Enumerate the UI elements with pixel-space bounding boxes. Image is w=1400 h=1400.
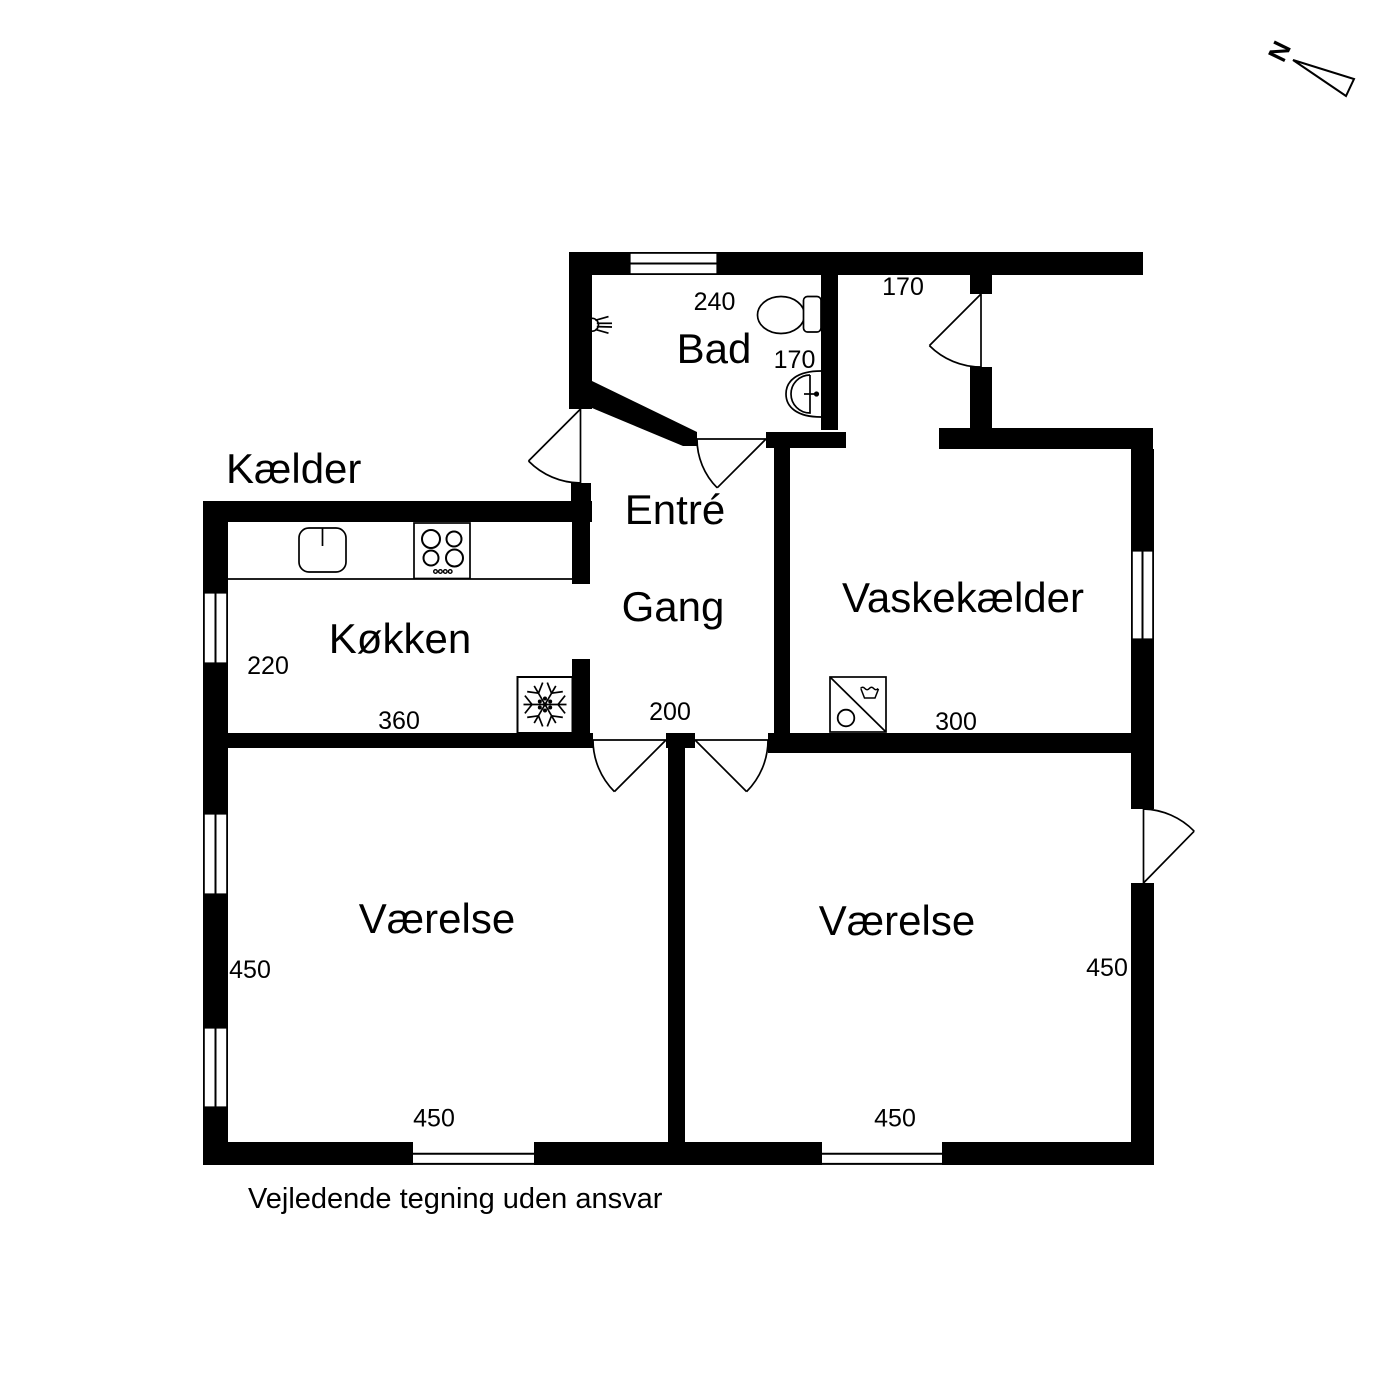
svg-text:170: 170 [882, 273, 924, 301]
svg-text:220: 220 [247, 652, 289, 680]
svg-text:Vejledende tegning uden ansvar: Vejledende tegning uden ansvar [248, 1183, 663, 1215]
svg-text:Gang: Gang [622, 583, 725, 630]
svg-text:Vaskekælder: Vaskekælder [842, 574, 1084, 621]
svg-text:170: 170 [774, 346, 816, 374]
svg-text:450: 450 [874, 1105, 916, 1133]
svg-text:300: 300 [935, 708, 977, 736]
svg-text:240: 240 [694, 288, 736, 316]
svg-text:200: 200 [649, 698, 691, 726]
svg-text:Bad: Bad [677, 325, 752, 372]
svg-text:450: 450 [1086, 954, 1128, 982]
svg-text:Køkken: Køkken [329, 615, 471, 662]
svg-text:360: 360 [378, 707, 420, 735]
svg-text:450: 450 [229, 956, 271, 984]
svg-text:Værelse: Værelse [359, 895, 515, 942]
svg-text:Værelse: Værelse [819, 897, 975, 944]
svg-text:Kælder: Kælder [226, 445, 361, 492]
svg-text:450: 450 [413, 1105, 455, 1133]
svg-text:Entré: Entré [625, 486, 725, 533]
